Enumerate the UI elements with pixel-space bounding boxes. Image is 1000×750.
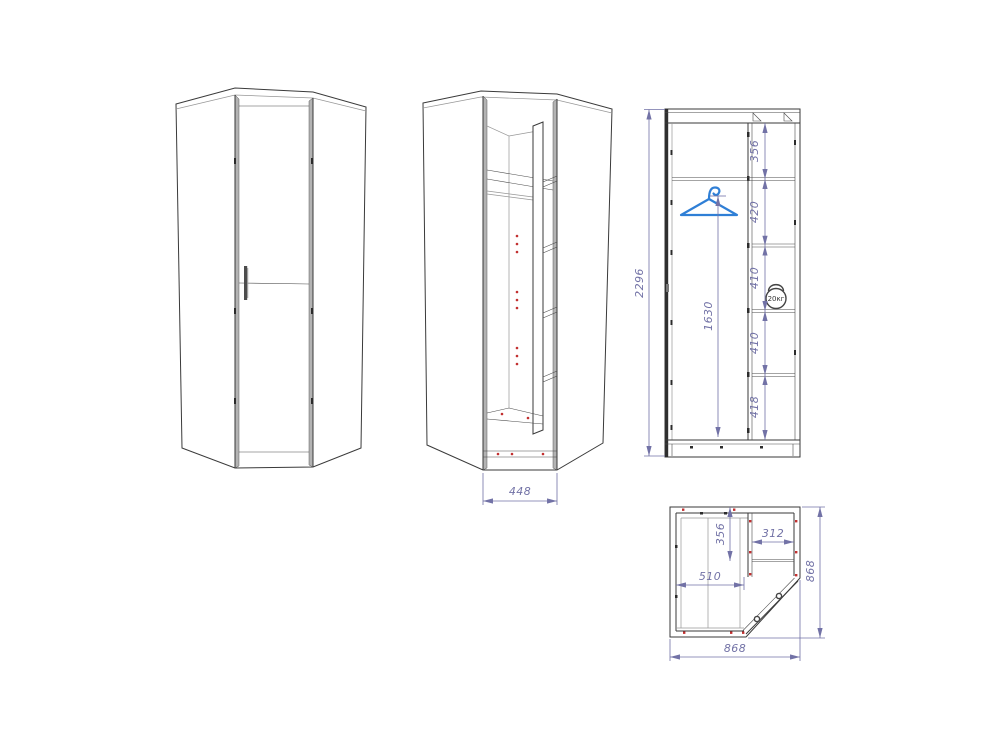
dim-label-plan-356: 356 <box>714 523 727 545</box>
dim-label-plan-510: 510 <box>699 570 721 583</box>
view-plan: 356 312 510 868 868 <box>670 507 825 661</box>
dim-label-1630: 1630 <box>702 301 715 331</box>
drawing-canvas: 448 <box>0 0 1000 750</box>
wardrobe-technical-drawing: 448 <box>0 0 1000 750</box>
dim-label-plan-312: 312 <box>762 527 784 540</box>
dim-label-418: 418 <box>748 396 761 418</box>
kettlebell-weight-icon: 20кг <box>766 285 786 309</box>
dim-label-448: 448 <box>509 485 531 498</box>
dim-label-410a: 410 <box>748 267 761 289</box>
interior-partition <box>533 122 543 434</box>
view-front-open: 448 <box>423 91 612 505</box>
front-edge-panel <box>665 109 668 457</box>
view-front-closed <box>176 88 366 468</box>
dim-label-420: 420 <box>748 201 761 223</box>
weight-badge-label: 20кг <box>768 295 785 303</box>
view-side-section: 20кг 2296 1630 356 420 410 410 418 <box>633 109 800 457</box>
dim-overall-height: 2296 <box>633 110 665 457</box>
dim-label-410b: 410 <box>748 332 761 354</box>
dim-opening-width: 448 <box>483 473 557 505</box>
dim-label-2296: 2296 <box>633 268 646 298</box>
dim-label-plan-868-width: 868 <box>724 642 746 655</box>
dim-label-plan-868-depth: 868 <box>804 560 817 582</box>
door-handle <box>244 266 248 300</box>
dim-label-356: 356 <box>748 140 761 162</box>
